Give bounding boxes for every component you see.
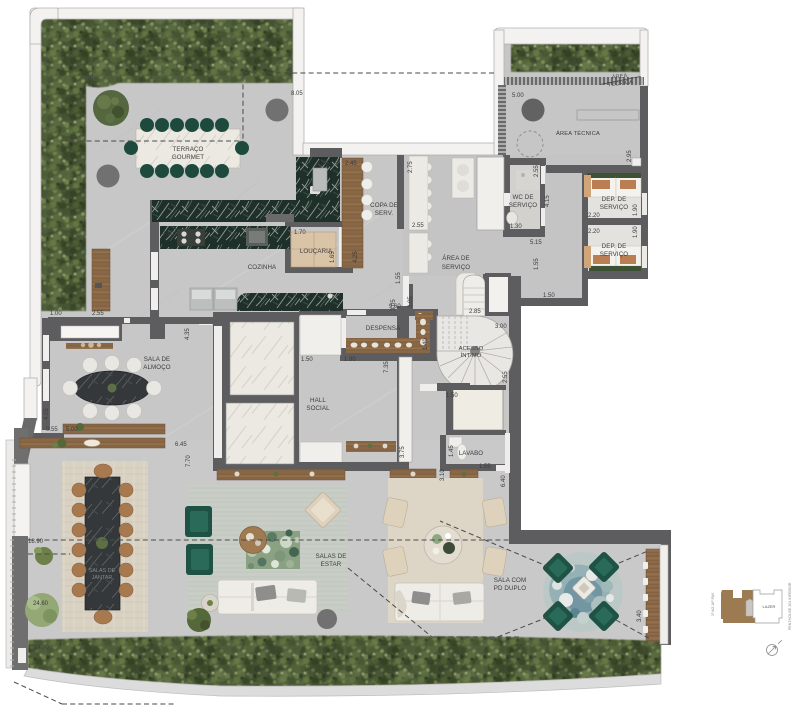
- svg-text:ACESSO: ACESSO: [459, 346, 484, 352]
- svg-text:1.65: 1.65: [330, 251, 336, 263]
- svg-text:1.90: 1.90: [633, 226, 639, 238]
- svg-text:SOCIAL: SOCIAL: [306, 405, 330, 412]
- svg-text:2.55: 2.55: [92, 311, 104, 317]
- svg-text:18.90: 18.90: [28, 539, 44, 545]
- svg-text:7.70: 7.70: [186, 455, 192, 467]
- svg-text:LOUÇARIA: LOUÇARIA: [300, 248, 333, 255]
- svg-text:3.00: 3.00: [495, 324, 507, 330]
- svg-text:WC DE: WC DE: [512, 194, 533, 201]
- svg-text:4.25: 4.25: [353, 251, 359, 263]
- svg-text:1.80: 1.80: [344, 357, 356, 363]
- svg-text:5.00: 5.00: [66, 427, 78, 433]
- svg-text:ESTAR: ESTAR: [321, 561, 342, 568]
- svg-text:DEP. DE: DEP. DE: [602, 243, 627, 250]
- svg-text:4.10: 4.10: [162, 231, 174, 237]
- svg-text:LAZER: LAZER: [763, 604, 776, 609]
- svg-text:SALAS DE: SALAS DE: [315, 553, 346, 560]
- svg-text:SERV.: SERV.: [375, 210, 394, 217]
- svg-text:2.75: 2.75: [408, 161, 414, 173]
- svg-text:1.40: 1.40: [423, 338, 429, 350]
- svg-text:COPA DE: COPA DE: [370, 202, 398, 209]
- svg-text:JANTAR: JANTAR: [92, 575, 113, 581]
- svg-text:ÍNTIMO: ÍNTIMO: [461, 352, 482, 359]
- svg-text:1.55: 1.55: [479, 464, 491, 470]
- svg-text:SALAS DE: SALAS DE: [89, 568, 116, 574]
- svg-text:3.05: 3.05: [391, 299, 397, 311]
- svg-text:1.90: 1.90: [633, 204, 639, 216]
- svg-text:HALL: HALL: [310, 397, 326, 404]
- svg-text:1.50: 1.50: [301, 357, 313, 363]
- svg-text:LAVABO: LAVABO: [459, 450, 484, 457]
- svg-text:6.40: 6.40: [501, 475, 507, 487]
- svg-text:3.05: 3.05: [408, 296, 414, 308]
- svg-text:1.70: 1.70: [294, 230, 306, 236]
- svg-text:7.35: 7.35: [384, 361, 390, 373]
- svg-text:SERVIÇO: SERVIÇO: [600, 251, 629, 258]
- svg-text:1.00: 1.00: [50, 311, 62, 317]
- svg-text:3.40: 3.40: [637, 610, 643, 622]
- svg-text:SALA COM: SALA COM: [494, 577, 526, 584]
- svg-text:SERVIÇO: SERVIÇO: [509, 202, 538, 209]
- svg-text:5.15: 5.15: [530, 240, 542, 246]
- svg-text:2.20: 2.20: [588, 213, 600, 219]
- svg-text:SERVIÇO: SERVIÇO: [600, 204, 629, 211]
- svg-text:4.15: 4.15: [545, 195, 551, 207]
- svg-text:6.45: 6.45: [175, 442, 187, 448]
- svg-text:ÁREA TÉCNICA: ÁREA TÉCNICA: [556, 130, 600, 137]
- svg-text:1.45: 1.45: [449, 445, 455, 457]
- svg-text:3.75: 3.75: [400, 446, 406, 458]
- svg-text:8.85: 8.85: [89, 74, 95, 86]
- svg-text:1.30: 1.30: [510, 224, 522, 230]
- svg-text:DEP. DE: DEP. DE: [602, 196, 627, 203]
- svg-text:1.50: 1.50: [543, 293, 555, 299]
- svg-text:5.00: 5.00: [512, 93, 524, 99]
- svg-text:2.55: 2.55: [534, 165, 540, 177]
- svg-text:1.55: 1.55: [534, 258, 540, 270]
- svg-text:TERRAÇO: TERRAÇO: [173, 146, 204, 153]
- svg-text:SALA DE: SALA DE: [144, 356, 171, 363]
- svg-text:24.70: 24.70: [34, 645, 50, 651]
- svg-text:SERVIÇO: SERVIÇO: [442, 264, 471, 271]
- svg-text:2.55: 2.55: [412, 223, 424, 229]
- svg-text:8.05: 8.05: [291, 91, 303, 97]
- svg-text:ALMOÇO: ALMOÇO: [143, 364, 171, 371]
- svg-text:2.55: 2.55: [317, 161, 329, 167]
- svg-text:1.50: 1.50: [446, 393, 458, 399]
- svg-text:ÁREA DE: ÁREA DE: [442, 255, 470, 262]
- svg-text:PENTHOUSE 301 INFERIOR: PENTHOUSE 301 INFERIOR: [788, 582, 792, 630]
- svg-text:DESPENSA: DESPENSA: [366, 325, 401, 332]
- svg-text:2.55: 2.55: [503, 371, 509, 383]
- svg-text:4.35: 4.35: [185, 328, 191, 340]
- svg-text:4.05: 4.05: [44, 408, 50, 420]
- svg-text:3.10: 3.10: [440, 469, 446, 481]
- svg-text:0.55: 0.55: [46, 427, 58, 433]
- svg-text:PD DUPLO: PD DUPLO: [494, 585, 527, 592]
- svg-text:2.20: 2.20: [588, 229, 600, 235]
- svg-text:COZINHA: COZINHA: [248, 264, 277, 271]
- svg-text:2.85: 2.85: [469, 309, 481, 315]
- svg-text:3º AO 16º PAV.: 3º AO 16º PAV.: [711, 592, 715, 616]
- svg-text:1.55: 1.55: [396, 272, 402, 284]
- svg-text:2.95: 2.95: [627, 150, 633, 162]
- svg-text:GOURMET: GOURMET: [172, 154, 204, 161]
- svg-text:2.45: 2.45: [345, 161, 357, 167]
- svg-text:24.60: 24.60: [33, 601, 49, 607]
